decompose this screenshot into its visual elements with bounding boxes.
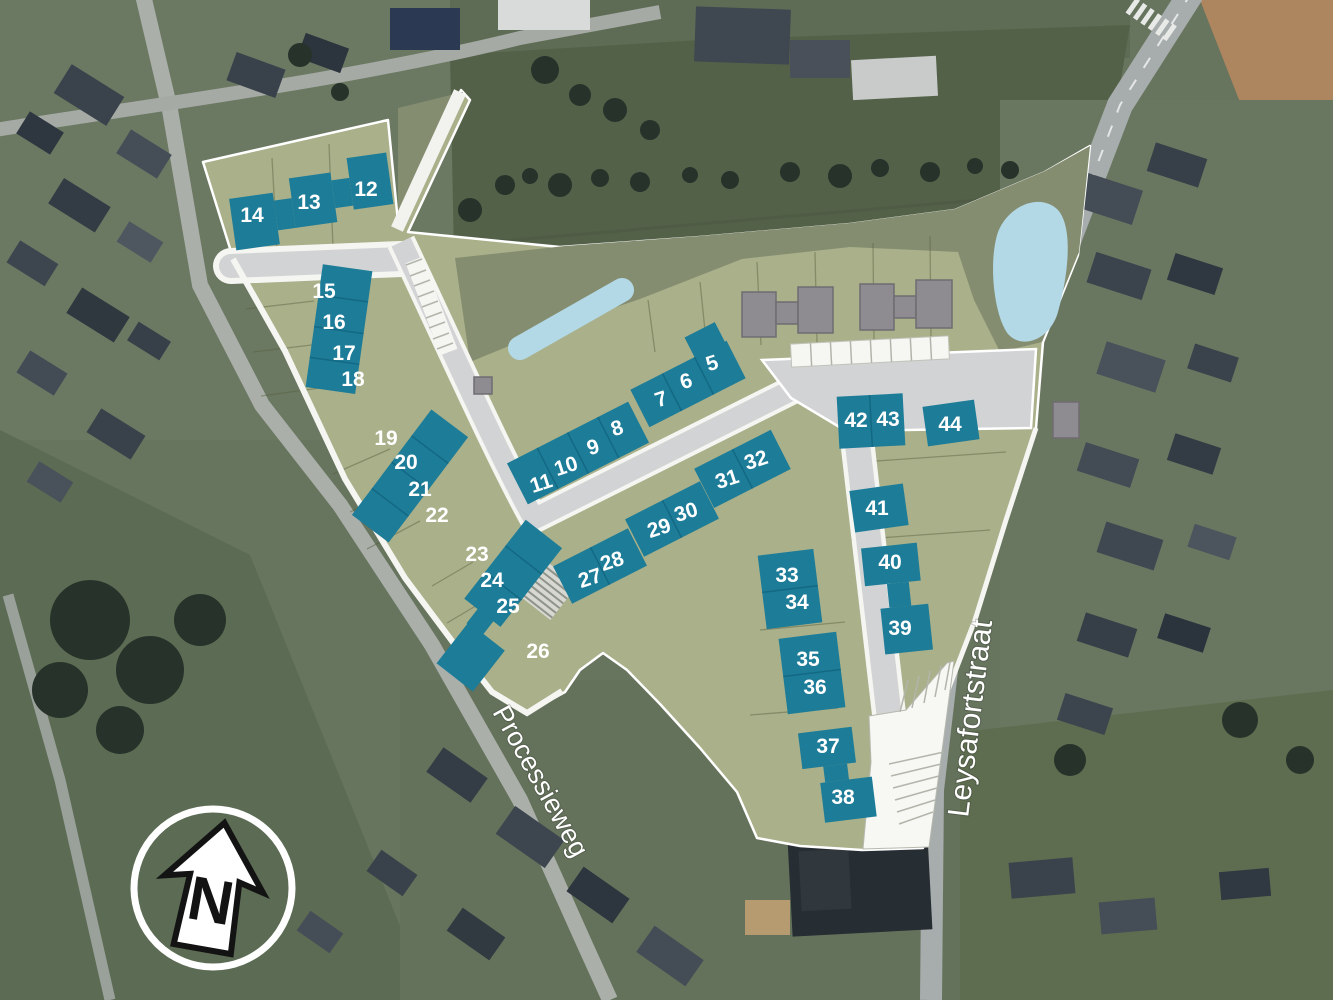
lot-number-14: 14 (240, 204, 264, 227)
lot-number-36: 36 (803, 676, 826, 699)
lot-number-35: 35 (796, 648, 820, 671)
lot-number-33: 33 (775, 564, 798, 587)
lot-number-16: 16 (322, 311, 345, 334)
lot-number-42: 42 (844, 409, 867, 432)
lot-number-21: 21 (408, 478, 432, 501)
lot-number-43: 43 (876, 408, 899, 431)
lot-number-12: 12 (354, 178, 377, 201)
lot-block-35-36 (779, 632, 846, 715)
lot-number-22: 22 (425, 504, 448, 527)
lot-number-23: 23 (465, 543, 488, 566)
lot-number-44: 44 (938, 413, 962, 436)
lot-number-24: 24 (480, 569, 504, 592)
lot-number-34: 34 (785, 591, 809, 614)
lot-number-25: 25 (496, 595, 520, 618)
lot-number-20: 20 (394, 451, 417, 474)
lot-number-26: 26 (526, 640, 549, 663)
lot-number-13: 13 (297, 191, 320, 214)
lot-number-40: 40 (878, 551, 901, 574)
site-plan-map: 5678910111213141516171819202122232425262… (0, 0, 1333, 1000)
lot-number-19: 19 (374, 427, 397, 450)
lot-block-33-34 (758, 549, 823, 629)
lot-number-15: 15 (312, 280, 336, 303)
lot-number-39: 39 (888, 617, 911, 640)
lot-number-38: 38 (831, 786, 855, 809)
lot-number-18: 18 (341, 368, 365, 391)
lot-number-17: 17 (332, 342, 355, 365)
lot-number-37: 37 (816, 735, 839, 758)
lot-number-41: 41 (865, 497, 889, 520)
